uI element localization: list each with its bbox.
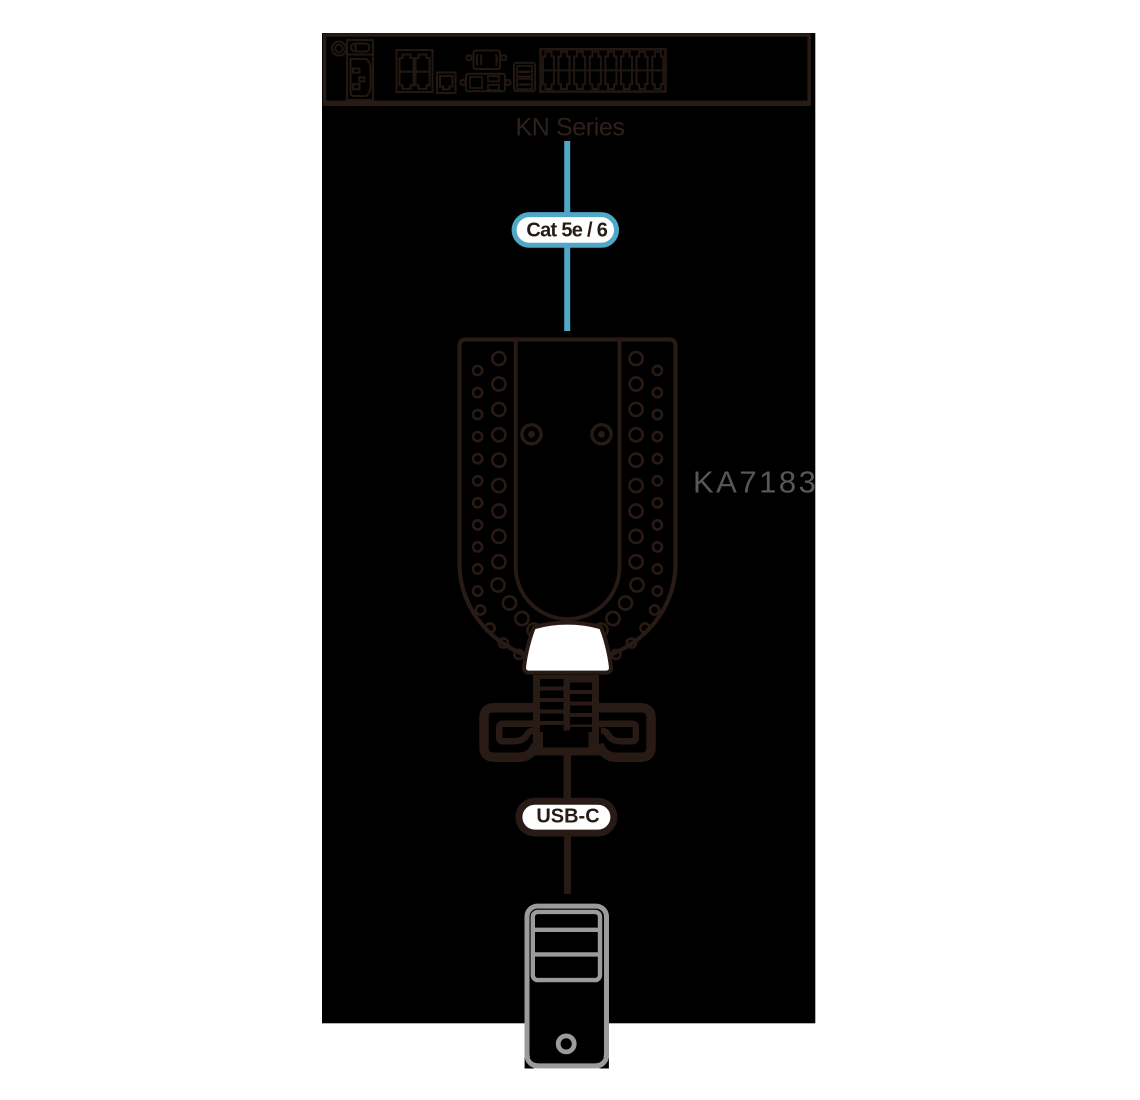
svg-text:Cat 5e / 6: Cat 5e / 6	[526, 219, 607, 241]
svg-text:USB-C: USB-C	[536, 806, 599, 828]
svg-text:KA7183: KA7183	[693, 465, 818, 500]
svg-text:KN Series: KN Series	[516, 114, 625, 142]
